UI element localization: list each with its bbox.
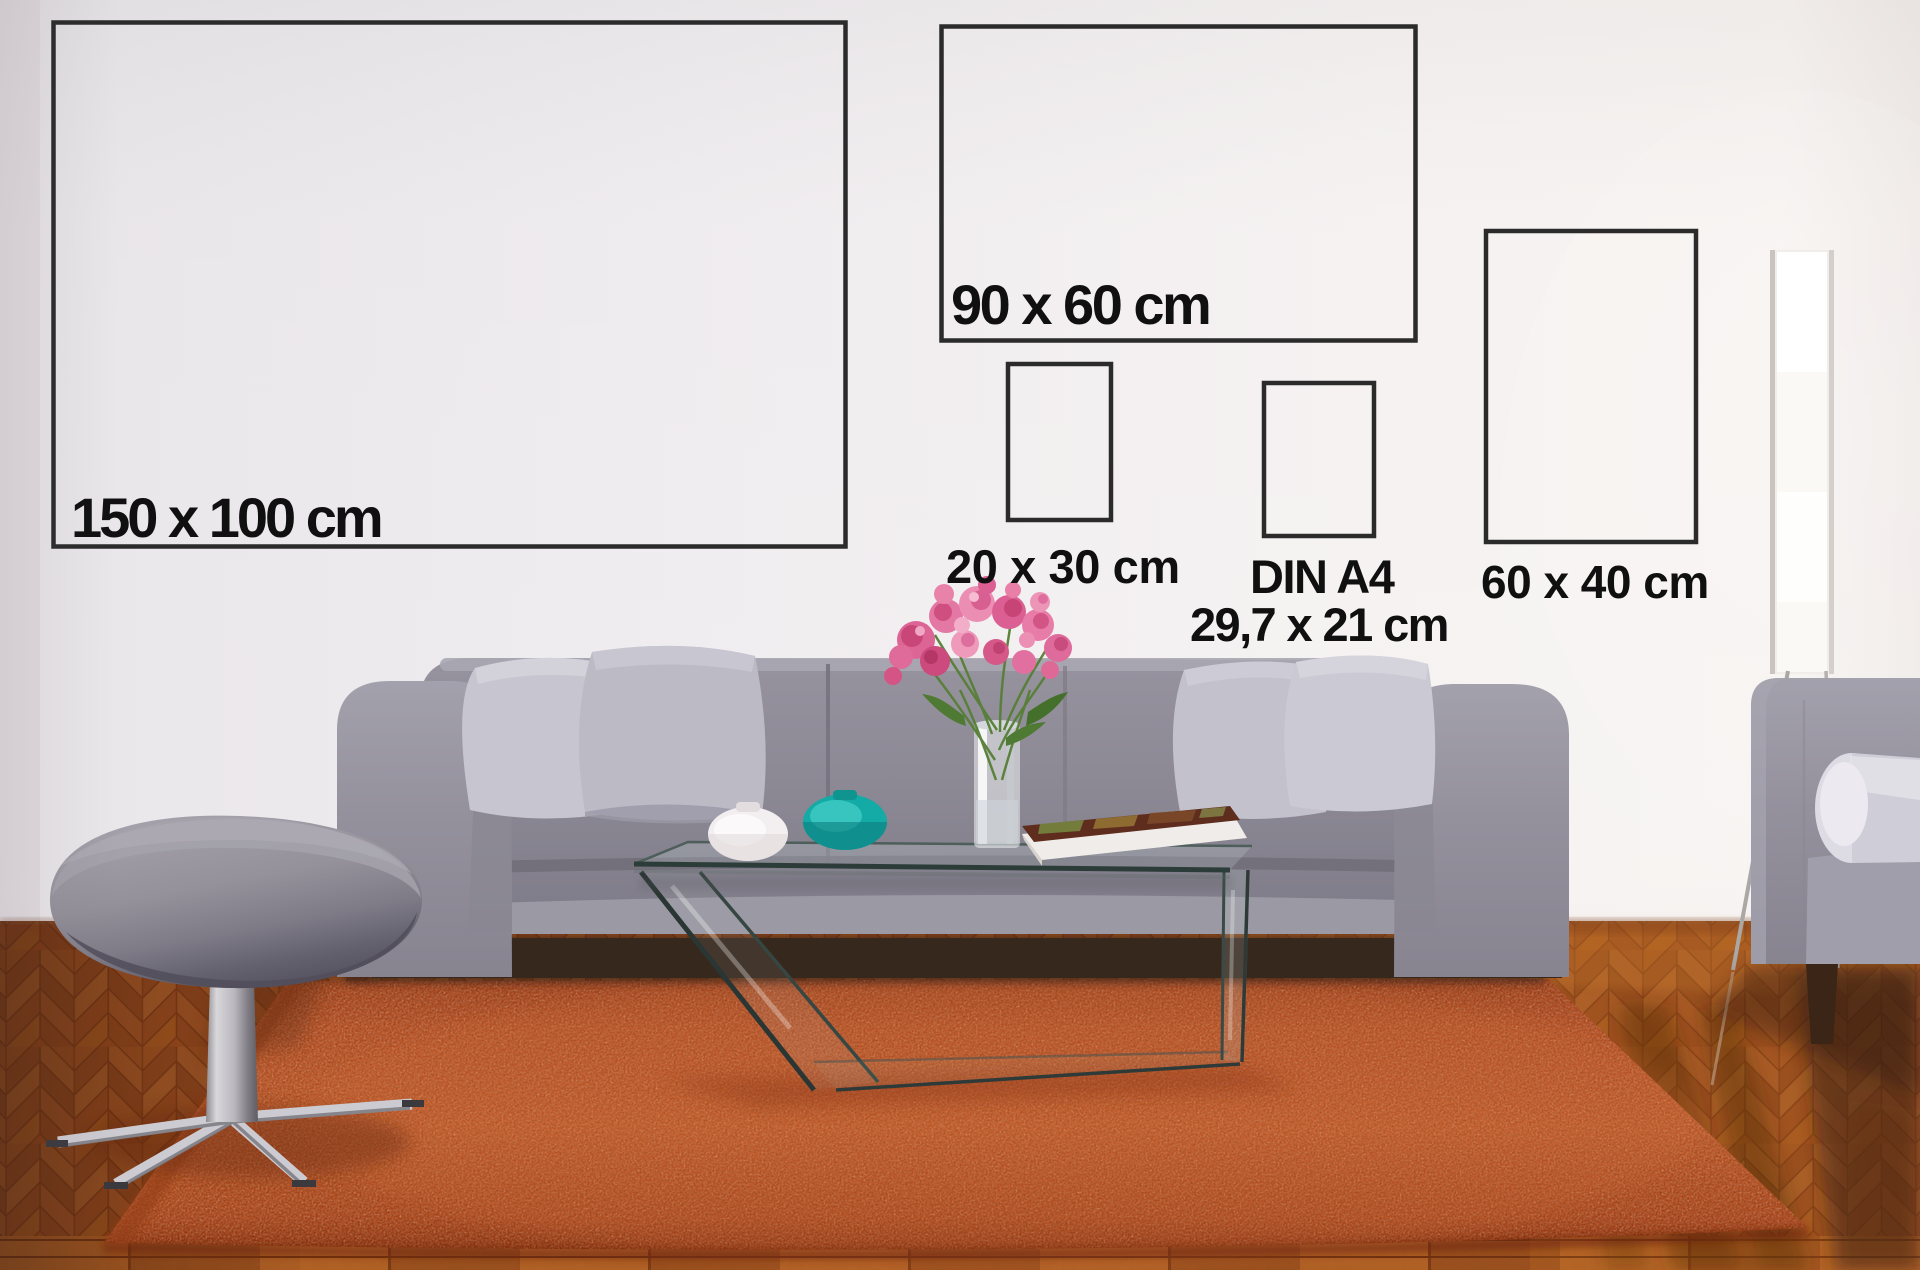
svg-text:90 x 60 cm: 90 x 60 cm [951, 273, 1209, 336]
svg-text:20 x 30 cm: 20 x 30 cm [946, 540, 1180, 593]
svg-text:DIN A4: DIN A4 [1250, 550, 1395, 603]
svg-text:60 x 40 cm: 60 x 40 cm [1481, 556, 1709, 608]
svg-text:29,7 x 21 cm: 29,7 x 21 cm [1190, 598, 1448, 651]
